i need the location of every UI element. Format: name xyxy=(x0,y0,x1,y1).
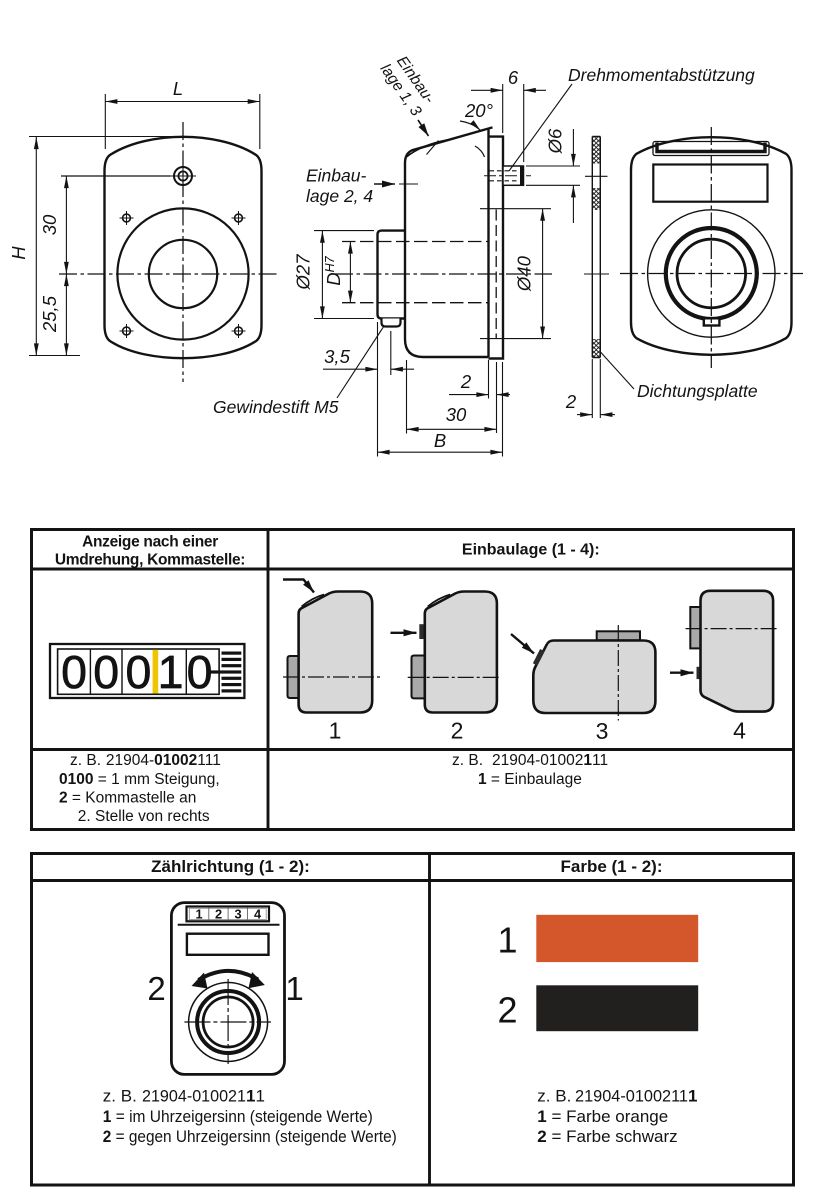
svg-text:2. Stelle von rechts: 2. Stelle von rechts xyxy=(78,808,210,825)
svg-text:Farbe (1 - 2):: Farbe (1 - 2): xyxy=(560,857,662,876)
svg-text:Ø40: Ø40 xyxy=(514,255,535,292)
svg-text:Anzeige nach einer: Anzeige nach einer xyxy=(82,534,218,551)
svg-text:2: 2 xyxy=(215,907,222,922)
svg-text:25,5: 25,5 xyxy=(39,295,60,333)
svg-text:0: 0 xyxy=(125,646,151,698)
svg-text:1: 1 xyxy=(158,646,184,698)
svg-text:1: 1 xyxy=(497,920,517,961)
svg-text:B: B xyxy=(434,430,446,451)
svg-text:2 = Kommastelle an: 2 = Kommastelle an xyxy=(59,789,196,806)
svg-text:Einbaulage (1 - 4):: Einbaulage (1 - 4): xyxy=(462,542,600,559)
svg-text:0100 = 1 mm Steigung,: 0100 = 1 mm Steigung, xyxy=(59,771,220,788)
svg-text:2: 2 xyxy=(497,990,517,1031)
svg-text:z. B.21904-01002111: z. B.21904-01002111 xyxy=(103,1087,265,1106)
svg-text:1: 1 xyxy=(285,970,303,1007)
svg-text:1: 1 xyxy=(329,718,342,744)
svg-text:4: 4 xyxy=(733,718,746,744)
svg-text:Zählrichtung (1 - 2):: Zählrichtung (1 - 2): xyxy=(151,857,310,876)
svg-text:30: 30 xyxy=(446,404,467,425)
svg-text:0: 0 xyxy=(61,646,87,698)
svg-text:0: 0 xyxy=(93,646,119,698)
svg-text:0: 0 xyxy=(187,646,213,698)
svg-text:z. B.21904-01002111: z. B.21904-01002111 xyxy=(452,752,608,769)
svg-text:1 = Einbaulage: 1 = Einbaulage xyxy=(478,771,582,788)
svg-text:30: 30 xyxy=(39,214,60,235)
svg-text:4: 4 xyxy=(254,907,262,922)
svg-text:z. B.21904-01002111: z. B.21904-01002111 xyxy=(537,1087,697,1106)
svg-text:lage 2, 4: lage 2, 4 xyxy=(306,186,373,206)
svg-text:L: L xyxy=(173,78,183,99)
svg-text:3: 3 xyxy=(234,907,241,922)
svg-text:2: 2 xyxy=(565,391,577,412)
svg-text:1 = Farbe orange: 1 = Farbe orange xyxy=(537,1107,668,1126)
svg-text:2: 2 xyxy=(460,371,472,392)
svg-text:3,5: 3,5 xyxy=(324,346,350,367)
svg-text:Gewindestift M5: Gewindestift M5 xyxy=(213,397,339,417)
svg-text:1 = im Uhrzeigersinn (steigend: 1 = im Uhrzeigersinn (steigende Werte) xyxy=(103,1107,373,1126)
svg-text:6: 6 xyxy=(508,67,519,88)
svg-text:z. B.21904-01002111: z. B.21904-01002111 xyxy=(70,752,221,769)
svg-text:DH7: DH7 xyxy=(323,255,344,285)
svg-text:2 = gegen Uhrzeigersinn (steig: 2 = gegen Uhrzeigersinn (steigende Werte… xyxy=(103,1127,397,1146)
svg-text:Drehmomentabstützung: Drehmomentabstützung xyxy=(568,65,755,85)
svg-text:H: H xyxy=(8,246,29,260)
svg-text:2: 2 xyxy=(451,718,464,744)
svg-text:3: 3 xyxy=(596,718,609,744)
svg-text:Umdrehung, Kommastelle:: Umdrehung, Kommastelle: xyxy=(55,552,245,569)
svg-text:2 = Farbe schwarz: 2 = Farbe schwarz xyxy=(537,1127,677,1146)
svg-text:1: 1 xyxy=(195,907,202,922)
svg-text:Ø27: Ø27 xyxy=(293,254,314,291)
svg-text:Dichtungsplatte: Dichtungsplatte xyxy=(637,381,758,401)
svg-text:2: 2 xyxy=(147,970,165,1007)
svg-text:Ø6: Ø6 xyxy=(545,128,566,154)
svg-text:20°: 20° xyxy=(464,100,493,121)
svg-text:Einbau-: Einbau- xyxy=(306,166,366,186)
